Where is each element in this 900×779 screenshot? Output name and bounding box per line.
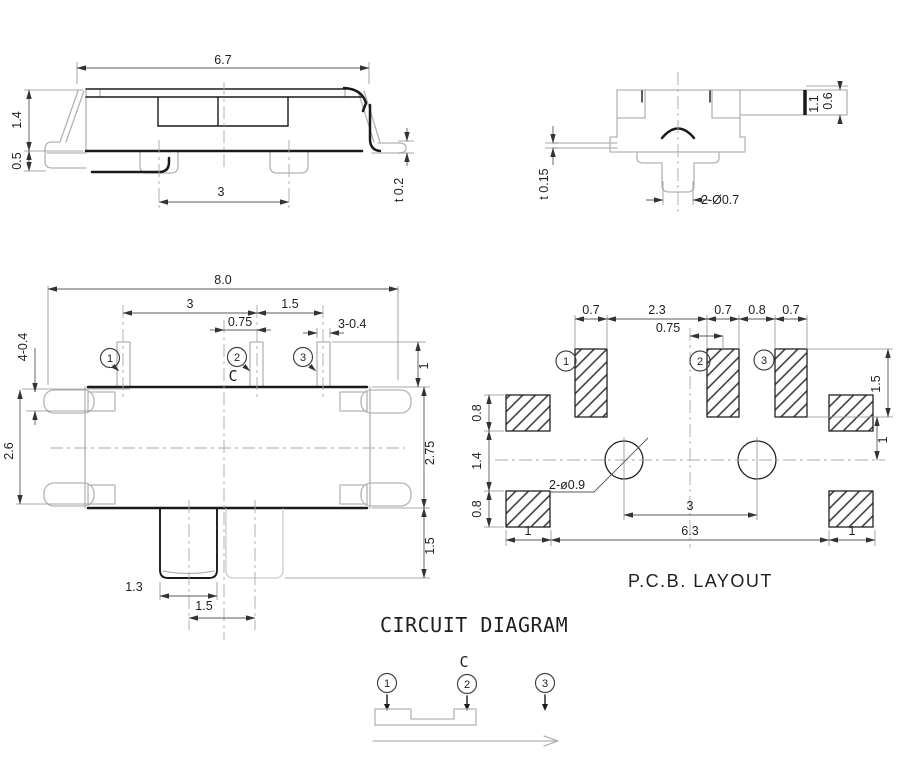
circuit-slide-arrow bbox=[373, 736, 558, 746]
dim-pitch23: 1.5 bbox=[281, 297, 298, 311]
bottom-view-dimensions: 8.0 3 1.5 0.75 3-0.4 4-0.4 1 2.6 2.75 1.… bbox=[2, 273, 437, 618]
dim-span: 6.3 bbox=[681, 524, 698, 538]
dim-pitch12: 3 bbox=[187, 297, 194, 311]
circuit-diagram-title: CIRCUIT DIAGRAM bbox=[380, 613, 568, 637]
dim-side-foot: 0.5 bbox=[10, 152, 24, 169]
dim-pad-h: 1.5 bbox=[869, 375, 883, 392]
dim-overall-height: 2.75 bbox=[423, 441, 437, 465]
side-view: 6.7 1.4 0.5 3 t 0.2 bbox=[10, 53, 414, 210]
dim-side-top-h: 0.8 bbox=[470, 404, 484, 421]
circuit-terminal-3: 3 bbox=[542, 678, 548, 690]
pin-label-1: 1 bbox=[107, 353, 113, 365]
dim-pad3-w: 0.7 bbox=[782, 303, 799, 317]
dim-body-height: 2.6 bbox=[2, 442, 16, 459]
drawing-canvas: 6.7 1.4 0.5 3 t 0.2 1.1 0.6 bbox=[0, 0, 900, 779]
end-view: 1.1 0.6 t 0.15 2-Ø0.7 bbox=[537, 72, 848, 212]
dim-end-offset: 1.1 bbox=[807, 95, 821, 112]
pcb-layout: 1 2 3 0.7 2.3 0.7 0.8 bbox=[470, 303, 893, 591]
dim-pin-width: 3-0.4 bbox=[338, 317, 367, 331]
dim-side-bot-h: 0.8 bbox=[470, 500, 484, 517]
dim-pad-to-center: 1 bbox=[876, 436, 890, 443]
circuit-common-label: C bbox=[459, 653, 468, 671]
dim-pad1-w: 0.7 bbox=[582, 303, 599, 317]
dim-tabs: 4-0.4 bbox=[16, 333, 30, 362]
common-terminal-label: C bbox=[228, 367, 237, 385]
pad-label-2: 2 bbox=[697, 356, 703, 368]
dim-travel: 1.5 bbox=[195, 599, 212, 613]
dim-knob-width: 1.3 bbox=[125, 580, 142, 594]
dim-holes: 2-ø0.9 bbox=[549, 478, 585, 492]
pcb-layout-title: P.C.B. LAYOUT bbox=[628, 571, 773, 591]
circuit-terminal-2: 2 bbox=[464, 679, 470, 691]
end-view-outline bbox=[553, 72, 847, 212]
pin-label-2: 2 bbox=[234, 352, 240, 364]
dim-side-height: 1.4 bbox=[10, 111, 24, 128]
dim-gap12: 2.3 bbox=[648, 303, 665, 317]
pad-label-3: 3 bbox=[761, 355, 767, 367]
dim-side-mid: 1.4 bbox=[470, 452, 484, 469]
dim-end-thickness: t 0.15 bbox=[537, 168, 551, 199]
dim-side-width: 6.7 bbox=[214, 53, 231, 67]
circuit-terminal-1: 1 bbox=[384, 678, 390, 690]
circuit-diagram: CIRCUIT DIAGRAM C 1 2 3 bbox=[373, 613, 568, 746]
dim-side-right-w: 1 bbox=[849, 524, 856, 538]
dim-gap23: 0.8 bbox=[748, 303, 765, 317]
dim-hole-pitch: 3 bbox=[687, 499, 694, 513]
pin-label-3: 3 bbox=[300, 352, 306, 364]
dim-center-offset: 0.75 bbox=[228, 315, 252, 329]
pad-label-1: 1 bbox=[563, 356, 569, 368]
end-view-dimensions: 1.1 0.6 t 0.15 2-Ø0.7 bbox=[537, 83, 848, 207]
dim-pad2-w: 0.7 bbox=[714, 303, 731, 317]
technical-drawing-page: 6.7 1.4 0.5 3 t 0.2 1.1 0.6 bbox=[0, 0, 900, 779]
side-view-outline bbox=[45, 82, 406, 210]
circuit-contact-shape bbox=[375, 709, 476, 725]
dim-side-thickness: t 0.2 bbox=[392, 178, 406, 202]
dim-pcb-center-offset: 0.75 bbox=[656, 321, 680, 335]
dim-pin-protrusion: 1 bbox=[417, 362, 431, 369]
dim-end-strip: 0.6 bbox=[821, 92, 835, 109]
dim-side-left-w: 1 bbox=[525, 524, 532, 538]
dim-side-pitch: 3 bbox=[218, 185, 225, 199]
bottom-view: 1 2 3 C 8.0 bbox=[2, 273, 437, 640]
dim-knob-height: 1.5 bbox=[423, 537, 437, 554]
bottom-view-pin-labels: 1 2 3 C bbox=[101, 348, 317, 386]
dim-end-pins: 2-Ø0.7 bbox=[701, 193, 739, 207]
dim-total-width: 8.0 bbox=[214, 273, 231, 287]
